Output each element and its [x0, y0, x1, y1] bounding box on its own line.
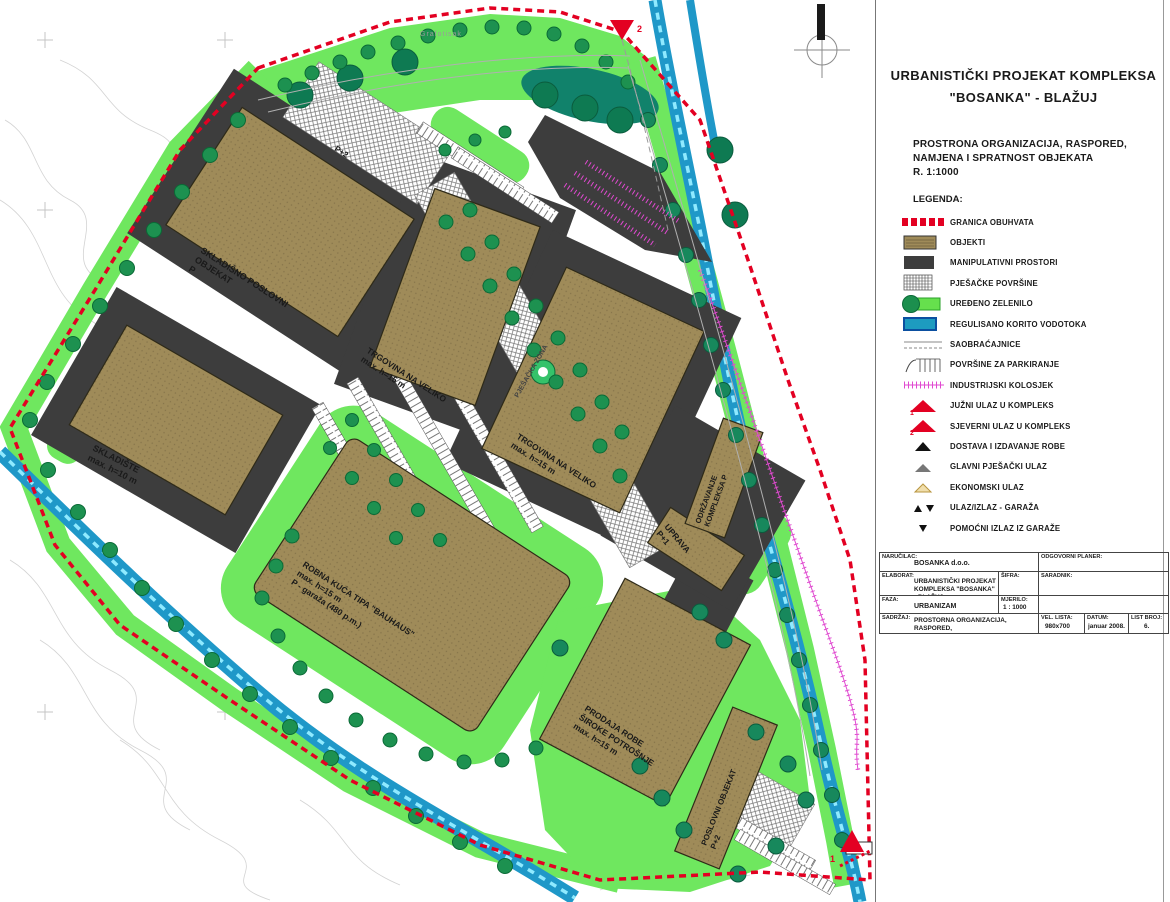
tree-icon	[434, 534, 447, 547]
tree-icon	[716, 383, 731, 398]
legend-item-garaza: ULAZ/IZLAZ - GARAŽA	[900, 497, 1160, 517]
tree-icon	[120, 261, 135, 276]
tree-icon	[615, 425, 629, 439]
south-entrance-number: 1	[830, 854, 835, 864]
legend-item-label: REGULISANO KORITO VODOTOKA	[950, 320, 1087, 329]
faza-value: URBANIZAM	[914, 603, 956, 611]
datum-value: januar 2008.	[1088, 623, 1125, 631]
sadrzaj-label: SADRŽAJ:	[882, 615, 910, 621]
empty-cell	[1038, 595, 1168, 613]
tree-icon	[324, 442, 337, 455]
map-label-topo: Grafotisak	[420, 31, 462, 38]
legend-item-pjesacki: GLAVNI PJEŠAČKI ULAZ	[900, 457, 1160, 477]
tree-icon	[361, 45, 375, 59]
tree-icon	[368, 444, 381, 457]
legend-item-label: DOSTAVA I IZDAVANJE ROBE	[950, 442, 1065, 451]
manipulativni-swatch-icon	[900, 254, 950, 272]
legend-item-label: UREĐENO ZELENILO	[950, 299, 1033, 308]
tree-icon	[333, 55, 347, 69]
tree-icon	[439, 215, 453, 229]
site-plan-map: 2 1 SKLADIŠNO POSLOVNIOBJEKATPP+2SKLADIŠ…	[0, 0, 875, 902]
mjerilo-value: 1 : 1000	[1003, 604, 1026, 612]
tree-icon	[412, 504, 425, 517]
korito-swatch-icon	[900, 315, 950, 333]
legend-item-label: OBJEKTI	[950, 238, 985, 247]
tree-icon	[593, 439, 607, 453]
tree-icon	[595, 395, 609, 409]
legend-item-granica: GRANICA OBUHVATA	[900, 212, 1160, 232]
legend-item-manipulativni: MANIPULATIVNI PROSTORI	[900, 253, 1160, 273]
legend-item-label: EKONOMSKI ULAZ	[950, 483, 1024, 492]
legend-item-label: INDUSTRIJSKI KOLOSJEK	[950, 381, 1053, 390]
tree-icon	[383, 733, 397, 747]
tree-icon	[419, 747, 433, 761]
list-broj-value: 6.	[1144, 623, 1149, 631]
tree-icon	[529, 299, 543, 313]
kolosjek-swatch-icon	[900, 376, 950, 394]
tree-icon	[654, 790, 670, 806]
sadrzaj-value-line1: PROSTORNA ORGANIZACIJA, RASPORED,	[914, 617, 1007, 632]
tree-icon	[391, 36, 405, 50]
tree-icon	[23, 413, 38, 428]
tree-icon	[147, 223, 162, 238]
objekti-swatch-icon	[900, 234, 950, 252]
tree-icon	[283, 720, 298, 735]
narucilac-label: NARUČILAC:	[882, 554, 917, 560]
legend-item-ulaz-sjeverni: 2SJEVERNI ULAZ U KOMPLEKS	[900, 416, 1160, 436]
vel-lista-value: 980x700	[1045, 623, 1070, 631]
tree-icon	[607, 107, 633, 133]
tree-icon	[507, 267, 521, 281]
legend-item-label: SJEVERNI ULAZ U KOMPLEKS	[950, 422, 1070, 431]
tree-icon	[692, 604, 708, 620]
tree-icon	[278, 78, 292, 92]
saobracajnice-swatch-icon	[900, 336, 950, 354]
tree-icon	[93, 299, 108, 314]
tree-icon	[390, 532, 403, 545]
tree-icon	[231, 113, 246, 128]
elaborat-value-line1: URBANISTIČKI PROJEKAT	[914, 578, 996, 585]
tree-icon	[135, 581, 150, 596]
plan-sheet: { "panel": { "title_line1": "URBANISTIČK…	[0, 0, 1170, 902]
tree-icon	[575, 39, 589, 53]
svg-text:1: 1	[910, 410, 914, 415]
tree-icon	[613, 469, 627, 483]
tree-icon	[551, 331, 565, 345]
tree-icon	[175, 185, 190, 200]
legend-item-label: POVRŠINE ZA PARKIRANJE	[950, 360, 1059, 369]
tree-icon	[71, 505, 86, 520]
legend-item-zelenilo: UREĐENO ZELENILO	[900, 294, 1160, 314]
tree-icon	[498, 859, 513, 874]
pjesacki-swatch-icon	[900, 458, 950, 476]
legend-item-label: PJEŠAČKE POVRŠINE	[950, 279, 1038, 288]
grid-cross-icon	[37, 202, 53, 218]
tree-icon	[390, 474, 403, 487]
tree-icon	[707, 137, 733, 163]
legend-item-pomocni: POMOĆNI IZLAZ IZ GARAŽE	[900, 518, 1160, 538]
tree-icon	[798, 792, 814, 808]
tree-icon	[485, 235, 499, 249]
tree-icon	[483, 279, 497, 293]
tree-icon	[243, 687, 258, 702]
tree-icon	[780, 756, 796, 772]
tree-icon	[825, 788, 840, 803]
tree-icon	[599, 55, 613, 69]
ulaz-sjeverni-swatch-icon: 2	[900, 417, 950, 435]
tree-icon	[505, 311, 519, 325]
subtitle-line1: PROSTRONA ORGANIZACIJA, RASPORED,	[913, 139, 1127, 150]
tree-icon	[792, 653, 807, 668]
tree-icon	[285, 529, 299, 543]
vel-lista-label: VEL. LISTA:	[1041, 615, 1073, 621]
tree-icon	[461, 247, 475, 261]
elaborat-value-line2: KOMPLEKSA "BOSANKA" - BLAŽUJ	[914, 586, 995, 595]
parkiranje-swatch-icon	[900, 356, 950, 374]
tree-icon	[349, 713, 363, 727]
tree-icon	[529, 741, 543, 755]
tree-icon	[368, 502, 381, 515]
dostava-swatch-icon	[900, 437, 950, 455]
tree-icon	[571, 407, 585, 421]
tree-icon	[748, 724, 764, 740]
legend-item-dostava: DOSTAVA I IZDAVANJE ROBE	[900, 436, 1160, 456]
tree-icon	[305, 66, 319, 80]
tree-icon	[716, 632, 732, 648]
scale-bar	[817, 4, 825, 40]
legend-item-pjesacke: PJEŠAČKE POVRŠINE	[900, 273, 1160, 293]
tree-icon	[439, 144, 451, 156]
tree-icon	[517, 21, 531, 35]
sheet-edge-line	[1163, 0, 1164, 902]
mjerilo-label: MJERILO:	[1001, 597, 1028, 603]
tree-icon	[676, 822, 692, 838]
project-title-line2: "BOSANKA" - BLAŽUJ	[876, 90, 1170, 105]
datum-label: DATUM:	[1087, 615, 1109, 621]
grid-cross-icon	[217, 32, 233, 48]
legend-item-ekonomski: EKONOMSKI ULAZ	[900, 477, 1160, 497]
planer-label: ODGOVORNI PLANER:	[1041, 554, 1102, 560]
legend-item-label: GLAVNI PJEŠAČKI ULAZ	[950, 462, 1047, 471]
tree-icon	[205, 653, 220, 668]
tree-icon	[255, 591, 269, 605]
list-broj-label: LIST BROJ:	[1131, 615, 1162, 621]
legend-item-label: ULAZ/IZLAZ - GARAŽA	[950, 503, 1039, 512]
garaza-swatch-icon	[900, 499, 950, 517]
tree-icon	[463, 203, 477, 217]
tree-icon	[549, 375, 563, 389]
legend-item-parkiranje: POVRŠINE ZA PARKIRANJE	[900, 355, 1160, 375]
tree-icon	[499, 126, 511, 138]
tree-icon	[547, 27, 561, 41]
tree-icon	[346, 414, 359, 427]
tree-icon	[814, 743, 829, 758]
legend: GRANICA OBUHVATAOBJEKTIMANIPULATIVNI PRO…	[900, 212, 1160, 538]
tree-icon	[346, 472, 359, 485]
zelenilo-swatch-icon	[900, 295, 950, 313]
tree-icon	[532, 82, 558, 108]
ulaz-juzni-swatch-icon: 1	[900, 397, 950, 415]
site-plan-svg: 2 1 SKLADIŠNO POSLOVNIOBJEKATPP+2SKLADIŠ…	[0, 0, 875, 902]
svg-text:2: 2	[910, 430, 914, 435]
tree-icon	[573, 363, 587, 377]
north-entrance-number: 2	[637, 24, 642, 34]
tree-icon	[729, 428, 744, 443]
tree-icon	[319, 689, 333, 703]
tree-icon	[457, 755, 471, 769]
legend-item-label: POMOĆNI IZLAZ IZ GARAŽE	[950, 524, 1060, 533]
grid-cross-icon	[37, 704, 53, 720]
narucilac-value: BOSANKA d.o.o.	[914, 560, 970, 568]
info-panel: URBANISTIČKI PROJEKAT KOMPLEKSA "BOSANKA…	[875, 0, 1170, 902]
tree-icon	[269, 559, 283, 573]
project-title-line1: URBANISTIČKI PROJEKAT KOMPLEKSA	[876, 68, 1170, 83]
tree-icon	[485, 20, 499, 34]
legend-item-label: GRANICA OBUHVATA	[950, 218, 1034, 227]
tree-icon	[271, 629, 285, 643]
saradnik-label: SARADNIK:	[1041, 573, 1072, 579]
pomocni-swatch-icon	[900, 519, 950, 537]
ekonomski-swatch-icon	[900, 478, 950, 496]
legend-item-objekti: OBJEKTI	[900, 232, 1160, 252]
tree-icon	[768, 838, 784, 854]
granica-swatch-icon	[900, 213, 950, 231]
legend-item-label: SAOBRAĆAJNICE	[950, 340, 1021, 349]
tree-icon	[469, 134, 481, 146]
legend-item-kolosjek: INDUSTRIJSKI KOLOSJEK	[900, 375, 1160, 395]
tree-icon	[203, 148, 218, 163]
subtitle-line2: NAMJENA I SPRATNOST OBJEKATA	[913, 153, 1093, 164]
tree-icon	[552, 640, 568, 656]
tree-icon	[103, 543, 118, 558]
legend-heading: LEGENDA:	[913, 194, 963, 205]
tree-icon	[169, 617, 184, 632]
legend-item-korito: REGULISANO KORITO VODOTOKA	[900, 314, 1160, 334]
legend-item-label: JUŽNI ULAZ U KOMPLEKS	[950, 401, 1054, 410]
tree-icon	[40, 375, 55, 390]
tree-icon	[293, 661, 307, 675]
tree-icon	[66, 337, 81, 352]
tree-icon	[495, 753, 509, 767]
legend-item-ulaz-juzni: 1JUŽNI ULAZ U KOMPLEKS	[900, 396, 1160, 416]
subtitle-scale: R. 1:1000	[913, 167, 959, 178]
tree-icon	[704, 338, 719, 353]
pjesacke-swatch-icon	[900, 274, 950, 292]
legend-item-label: MANIPULATIVNI PROSTORI	[950, 258, 1058, 267]
grid-cross-icon	[37, 32, 53, 48]
title-block: NARUČILAC: BOSANKA d.o.o. ELABORAT: URBA…	[879, 552, 1169, 634]
legend-item-saobracajnice: SAOBRAĆAJNICE	[900, 334, 1160, 354]
sifra-label: ŠIFRA:	[1001, 573, 1020, 579]
tree-icon	[41, 463, 56, 478]
elaborat-label: ELABORAT:	[882, 573, 914, 579]
tree-icon	[572, 95, 598, 121]
faza-label: FAZA:	[882, 597, 898, 603]
